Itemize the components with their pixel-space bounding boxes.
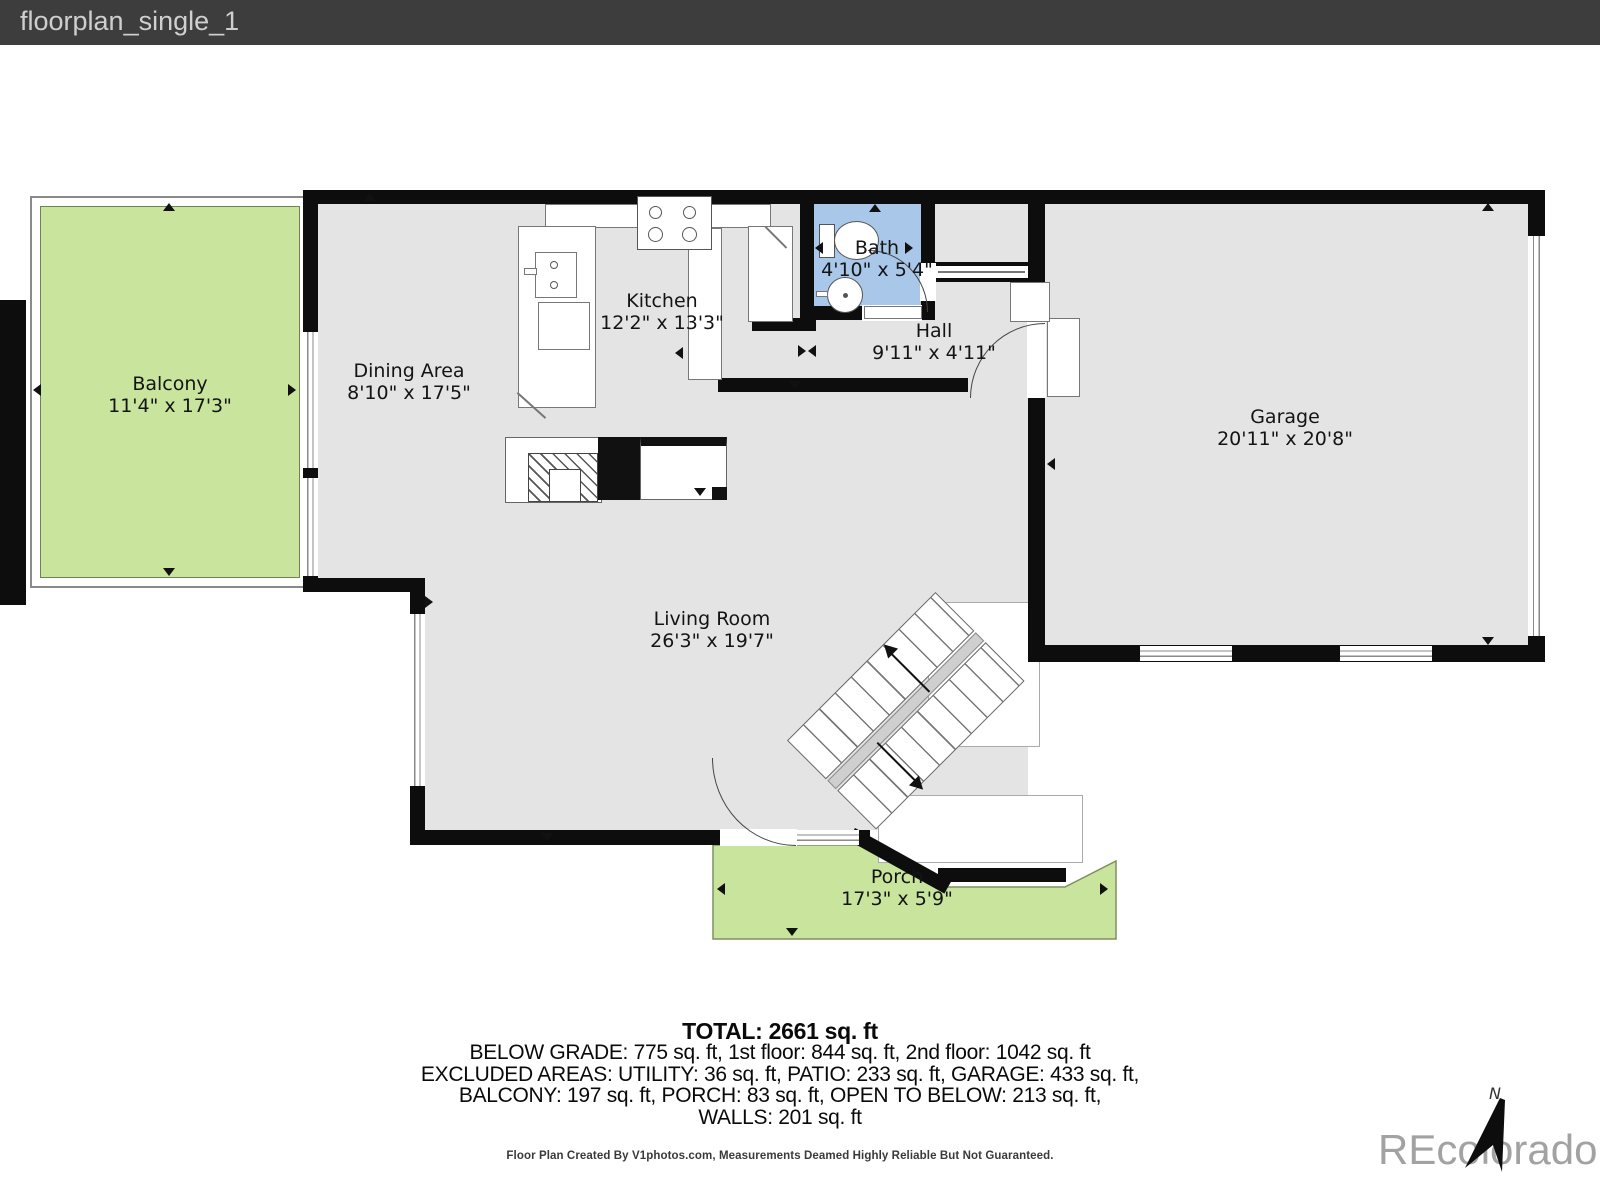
faucet-handle [524, 268, 537, 275]
file-title: floorplan_single_1 [20, 6, 239, 37]
hall-window-line [938, 271, 1025, 273]
tick [675, 347, 683, 359]
balcony-label: Balcony 11'4" x 17'3" [108, 373, 232, 417]
wall-garage-left [1028, 190, 1045, 662]
tick [789, 381, 801, 389]
floorplan-viewer: floorplan_single_1 [0, 0, 1600, 1200]
tick [288, 384, 296, 396]
tick [163, 203, 175, 211]
title-bar: floorplan_single_1 [0, 0, 1600, 45]
wall-step [303, 578, 425, 592]
room-name: Bath [821, 237, 933, 259]
garage-window-bottom-1 [1140, 646, 1232, 661]
garage-label: Garage 20'11" x 20'8" [1217, 406, 1353, 450]
tick [808, 345, 816, 357]
media-cabinet-corner [712, 487, 727, 500]
north-arrow-icon [1455, 1080, 1525, 1175]
tick [425, 596, 433, 608]
tick [1482, 637, 1494, 645]
kitchen-sink-basin [538, 302, 590, 350]
stove [637, 196, 712, 250]
room-name: Dining Area [347, 360, 471, 382]
tick [717, 883, 725, 895]
tick [1100, 883, 1108, 895]
tick [541, 833, 553, 841]
room-name: Kitchen [600, 290, 724, 312]
area-summary: TOTAL: 2661 sq. ft BELOW GRADE: 775 sq. … [180, 1020, 1380, 1162]
room-name: Porch [841, 866, 953, 888]
room-name: Hall [872, 320, 996, 342]
wall-bath-left [800, 190, 814, 320]
tick [1047, 458, 1055, 470]
summary-line: EXCLUDED AREAS: UTILITY: 36 sq. ft, PATI… [180, 1064, 1380, 1086]
stove-burner-4 [682, 227, 697, 242]
tick [33, 384, 41, 396]
porch-label: Porch 17'3" x 5'9" [841, 866, 953, 910]
bath-sink-faucet [816, 291, 828, 297]
living-label: Living Room 26'3" x 19'7" [650, 608, 774, 652]
kitchen-faucet-box [535, 252, 577, 298]
living-window-bottom [797, 830, 859, 845]
garage-window-right [1528, 236, 1545, 636]
room-dims: 12'2" x 13'3" [600, 312, 724, 334]
room-dims: 17'3" x 5'9" [841, 888, 953, 910]
stove-burner-2 [683, 206, 696, 219]
disclaimer: Floor Plan Created By V1photos.com, Meas… [180, 1150, 1380, 1162]
room-name: Balcony [108, 373, 232, 395]
wall-garage-bottom [1028, 645, 1545, 662]
total-area: TOTAL: 2661 sq. ft [180, 1020, 1380, 1042]
room-name: Living Room [650, 608, 774, 630]
room-dims: 9'11" x 4'11" [872, 342, 996, 364]
stove-burner-1 [649, 206, 662, 219]
bath-sink-drain [843, 293, 848, 298]
wall-stairs-lower [938, 868, 1066, 882]
tick [1482, 203, 1494, 211]
kitchen-label: Kitchen 12'2" x 13'3" [600, 290, 724, 334]
tick [786, 928, 798, 936]
dining-label: Dining Area 8'10" x 17'5" [347, 360, 471, 404]
room-dims: 11'4" x 17'3" [108, 395, 232, 417]
bath-label: Bath 4'10" x 5'4" [821, 237, 933, 281]
tick [163, 568, 175, 576]
kitchen-counter-right [748, 226, 793, 322]
balcony-slider-window [303, 332, 318, 468]
tick [869, 204, 881, 212]
edge-wall-fragment [0, 300, 26, 605]
faucet-knob-2 [550, 281, 558, 289]
fireplace-firebox [549, 469, 581, 502]
wall-under-hall [718, 378, 968, 392]
room-dims: 4'10" x 5'4" [821, 259, 933, 281]
stove-burner-3 [648, 227, 663, 242]
tick [364, 193, 376, 201]
hall-closet [1010, 282, 1050, 322]
garage-door-leaf [1047, 318, 1080, 397]
summary-line: BALCONY: 197 sq. ft, PORCH: 83 sq. ft, O… [180, 1085, 1380, 1107]
garage-window-bottom-2 [1340, 646, 1432, 661]
media-cabinet-tick [694, 488, 706, 496]
tick [798, 345, 806, 357]
summary-line: WALLS: 201 sq. ft [180, 1107, 1380, 1129]
living-window-left [410, 614, 425, 786]
balcony-window-2 [303, 478, 318, 576]
hall-label: Hall 9'11" x 4'11" [872, 320, 996, 364]
room-dims: 26'3" x 19'7" [650, 630, 774, 652]
room-dims: 8'10" x 17'5" [347, 382, 471, 404]
room-name: Garage [1217, 406, 1353, 428]
fireplace-chimney [598, 437, 640, 500]
summary-line: BELOW GRADE: 775 sq. ft, 1st floor: 844 … [180, 1042, 1380, 1064]
room-dims: 20'11" x 20'8" [1217, 428, 1353, 450]
faucet-knob-1 [550, 261, 558, 269]
